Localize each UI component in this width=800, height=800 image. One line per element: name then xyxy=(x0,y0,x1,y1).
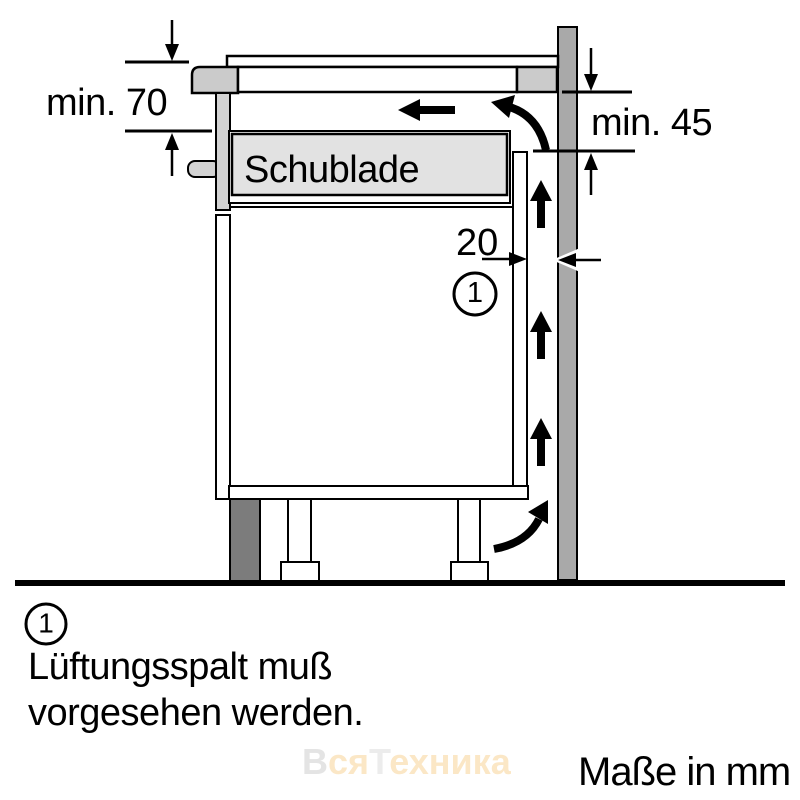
airflow-left-icon xyxy=(398,99,420,121)
plinth-panel xyxy=(230,499,260,581)
legend-line2: vorgesehen werden. xyxy=(28,690,363,736)
leg-shaft xyxy=(458,499,480,562)
callout-number: 1 xyxy=(467,277,483,310)
cabinet-leg-right xyxy=(451,499,488,581)
wall-section xyxy=(558,27,577,580)
worktop-rear-edge xyxy=(517,67,557,92)
airflow-up-icon xyxy=(530,180,552,201)
watermark-segment: В xyxy=(302,741,328,782)
airflow-up-icon xyxy=(530,418,552,439)
legend-text: Lüftungsspalt muß vorgesehen werden. xyxy=(28,644,363,736)
installation-diagram-page: min. 70 min. 45 20 Schublade 1 1 Lüftung… xyxy=(0,0,800,800)
cooktop-glass xyxy=(227,56,558,67)
dim-label-gap20: 20 xyxy=(456,224,498,262)
cooktop-body xyxy=(238,67,517,92)
cabinet-back-panel xyxy=(513,152,527,486)
leg-foot xyxy=(281,562,319,581)
units-note: Maße in mm xyxy=(578,750,790,795)
legend-number: 1 xyxy=(38,607,54,639)
worktop-front-edge xyxy=(192,67,238,93)
drawer-label: Schublade xyxy=(244,151,419,189)
dim-label-min45: min. 45 xyxy=(591,104,712,142)
arrow-up-icon xyxy=(165,133,179,150)
watermark-segment: ся xyxy=(328,741,369,782)
cabinet-front-panel xyxy=(216,215,230,499)
watermark: ВсяТехника xyxy=(302,741,511,783)
cabinet-bottom-panel xyxy=(229,486,528,499)
arrow-down-icon xyxy=(584,74,598,91)
leg-foot xyxy=(451,562,488,581)
airflow-curve-left-icon xyxy=(491,95,515,118)
airflow-up-icon xyxy=(530,311,552,332)
dimension-gap20 xyxy=(482,248,601,272)
floor-line xyxy=(15,580,785,586)
dim-label-min70: min. 70 xyxy=(46,84,167,122)
legend-line1: Lüftungsspalt muß xyxy=(28,644,363,690)
drawer-front-panel xyxy=(216,93,230,210)
watermark-segment: Т xyxy=(369,741,389,782)
cabinet-leg-left xyxy=(281,499,319,581)
watermark-segment: ехника xyxy=(389,741,510,782)
arrow-down-icon xyxy=(165,44,179,61)
leg-shaft xyxy=(288,499,311,562)
arrow-up-icon xyxy=(584,153,598,170)
